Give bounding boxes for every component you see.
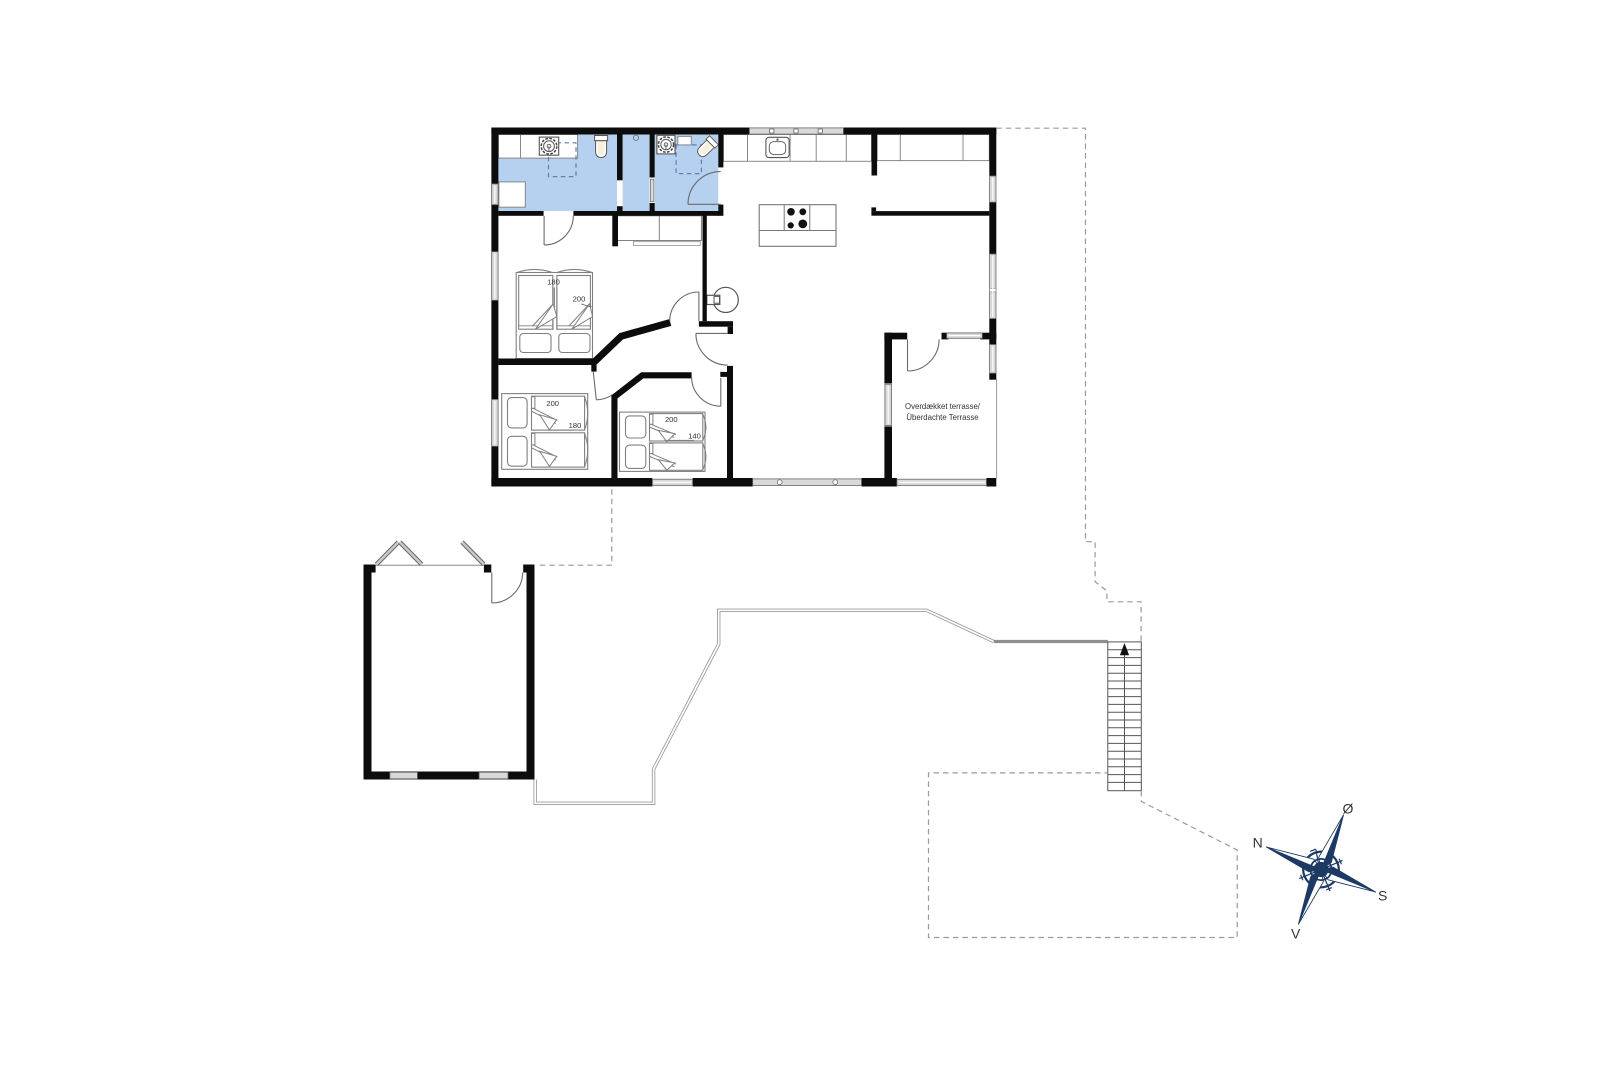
svg-text:180: 180 — [547, 277, 560, 286]
svg-text:200: 200 — [665, 415, 678, 424]
svg-text:180: 180 — [569, 421, 582, 430]
svg-text:N: N — [1253, 835, 1263, 851]
svg-text:200: 200 — [546, 399, 559, 408]
svg-text:S: S — [1378, 888, 1387, 904]
svg-text:V: V — [1291, 926, 1301, 942]
svg-text:200: 200 — [573, 295, 586, 304]
svg-text:Overdækket terrasse/: Overdækket terrasse/ — [905, 402, 981, 411]
svg-text:140: 140 — [688, 432, 701, 441]
svg-text:Überdachte Terrasse: Überdachte Terrasse — [906, 413, 978, 422]
svg-text:Ø: Ø — [1343, 801, 1354, 817]
